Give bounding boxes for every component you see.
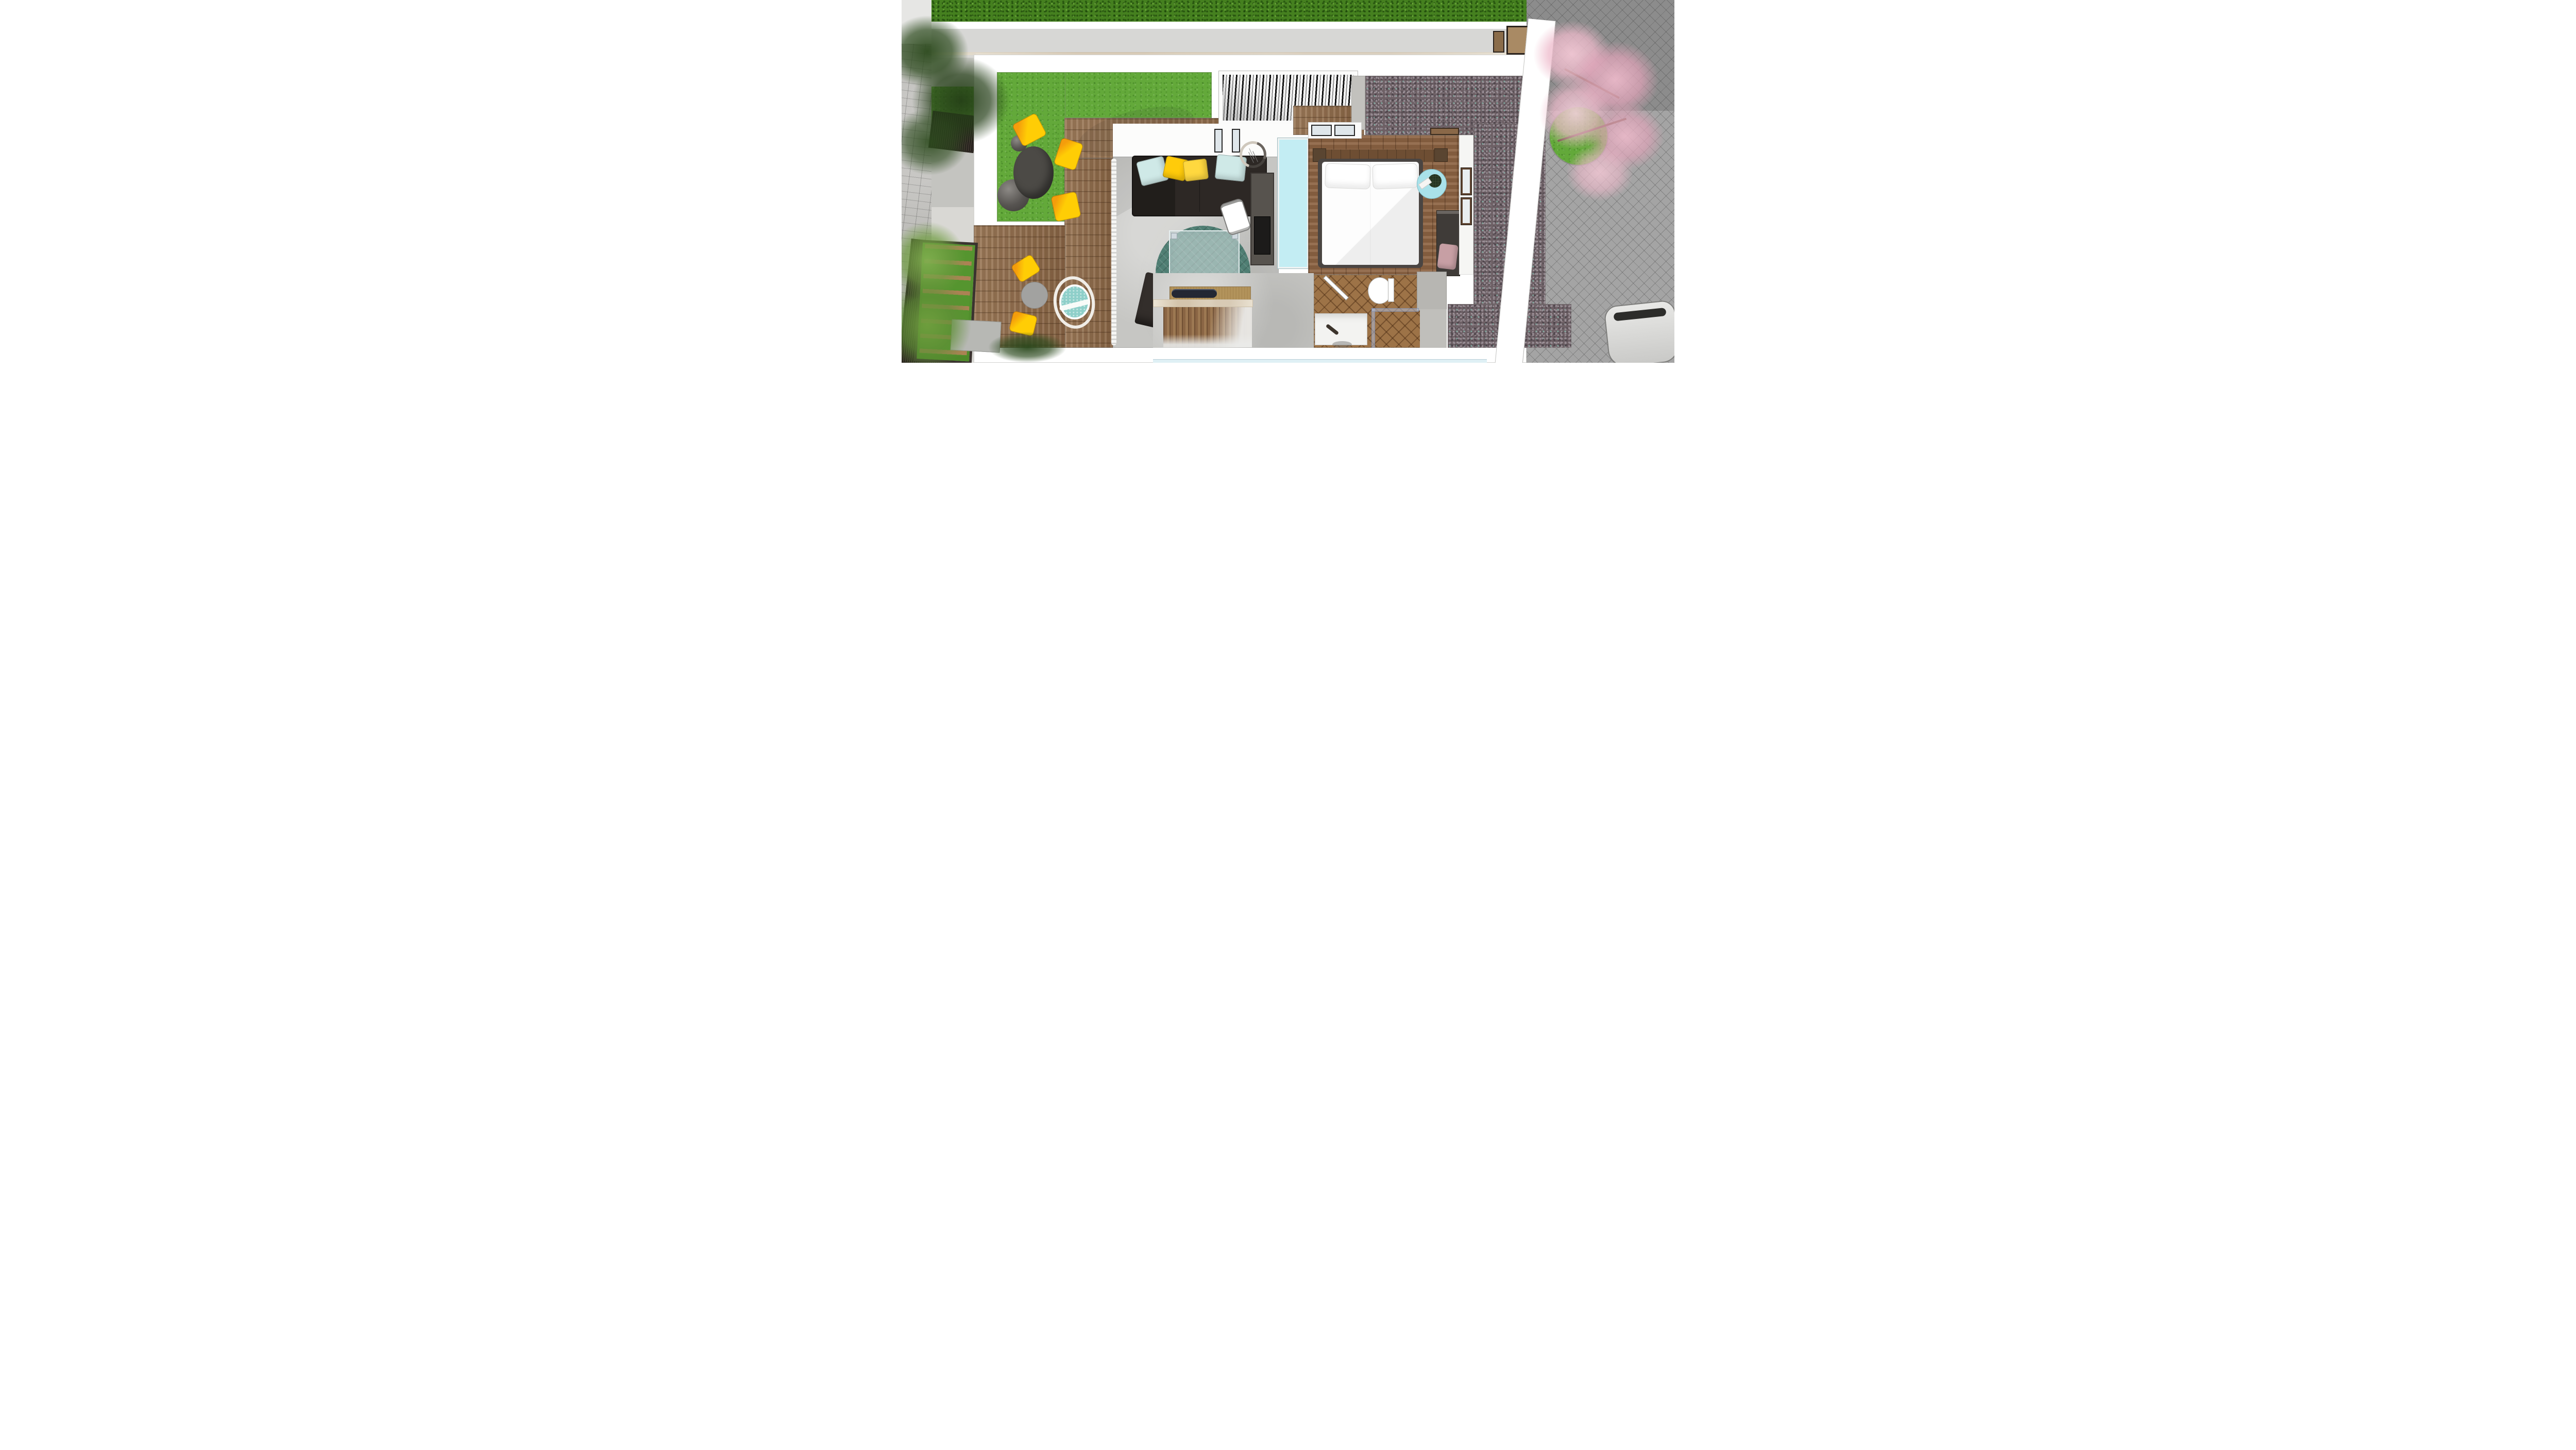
- glass-door-frame-2: [1232, 129, 1240, 153]
- roof-window-box-small: [1493, 31, 1504, 53]
- closet-slider-1: [1311, 125, 1332, 136]
- blossom-canopy-5: [1566, 144, 1633, 201]
- north-window-sill: [1430, 128, 1459, 135]
- closet-slider-2: [1334, 125, 1355, 136]
- bathroom-vanity-wall: [1417, 272, 1447, 311]
- staircase-treads: [1163, 307, 1252, 347]
- marble-counter-edge: [1153, 299, 1253, 307]
- hanging-egg-chair-cushion: [1059, 284, 1090, 319]
- facade-glass-strip: [1153, 359, 1487, 363]
- shower-floor-strip: [1420, 309, 1447, 348]
- shower-glass-front: [1371, 308, 1419, 312]
- sofa-pillow-yellow-2: [1183, 158, 1209, 181]
- east-window-1: [1461, 168, 1471, 195]
- car-roof: [1603, 299, 1674, 363]
- terrace-chair-3: [1050, 191, 1081, 222]
- top-roof-band: [931, 29, 1527, 53]
- bed-pillow-right: [1372, 163, 1418, 189]
- bush-bottom: [988, 332, 1066, 363]
- skylight-strip: [1278, 138, 1309, 268]
- top-wall-cap: [931, 22, 1527, 29]
- serving-tray: [1172, 289, 1217, 298]
- bed-pillow-left: [1325, 163, 1371, 189]
- vanity-sink: [1315, 313, 1367, 345]
- tv-screen: [1254, 216, 1270, 255]
- living-west-curtain: [1111, 159, 1116, 345]
- sink-drain-mat: [1332, 341, 1352, 348]
- floor-plan-render: [902, 0, 1674, 363]
- glass-door-frame-1: [1214, 129, 1223, 153]
- shower-glass-side: [1371, 308, 1375, 348]
- pink-throw-cushion: [1437, 243, 1459, 270]
- toilet-tank: [1388, 278, 1394, 302]
- east-window-2: [1461, 198, 1471, 225]
- bistro-table-dark: [1013, 146, 1054, 199]
- table-post-tl: [1171, 233, 1177, 239]
- balcony-table-gray: [1021, 282, 1048, 309]
- top-hedge: [931, 0, 1527, 22]
- nightstand-right: [1434, 148, 1448, 162]
